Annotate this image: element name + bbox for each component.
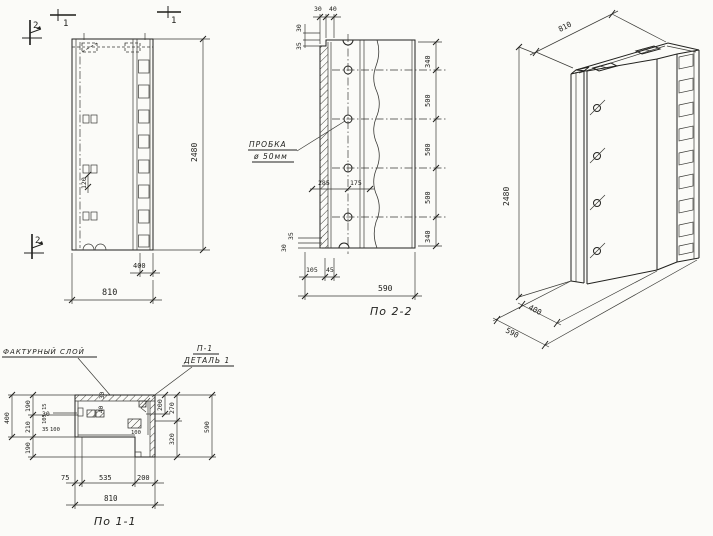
svg-text:30: 30 — [295, 24, 303, 32]
svg-text:2480: 2480 — [502, 187, 511, 206]
section-mark-2a: 2 — [22, 20, 42, 45]
drawing-sheet: 120 2480 400 810 1 1 2 — [0, 0, 713, 536]
elevation-width-dim: 810 — [64, 253, 162, 304]
elevation-height-dim: 2480 — [153, 36, 210, 253]
detail-ref-label: П-1 — [197, 344, 213, 353]
iso-montage-slots — [593, 46, 660, 71]
svg-text:340: 340 — [424, 55, 432, 68]
elevation-dim-width: 810 — [102, 288, 117, 298]
s11-embedded-parts — [78, 398, 150, 428]
s11-left-dims: 190 210 190 400 — [3, 392, 135, 460]
s11-right-dims: 200 270 320 590 — [146, 392, 216, 460]
svg-text:35: 35 — [295, 42, 303, 50]
iso-bottom-dims: 400 590 — [493, 260, 697, 349]
facing-layer-leader — [78, 358, 110, 395]
iso-height-dim: 2480 — [502, 44, 571, 300]
svg-text:175: 175 — [350, 179, 362, 187]
s11-right-strip — [150, 401, 155, 457]
svg-text:30: 30 — [99, 391, 106, 399]
s22-topleft-dims: 30 35 — [295, 24, 320, 50]
elevation-panel-outline — [72, 39, 153, 250]
section-2-2-view: 30 40 30 35 ПРОБКА ø 50мм 285 175 340 50… — [248, 5, 448, 318]
section-mark-1b: 1 — [157, 6, 181, 26]
s22-bottom-dims: 105 45 590 — [298, 252, 422, 300]
svg-text:30: 30 — [314, 5, 322, 13]
iso-right-face — [657, 54, 677, 270]
elevation-dim-height: 2480 — [190, 143, 199, 162]
section-mark-2b: 2 — [24, 234, 44, 259]
elevation-brackets — [83, 115, 97, 220]
iso-width-dim: 810 — [530, 10, 666, 68]
elevation-bottom-notches — [83, 244, 106, 250]
svg-text:190: 190 — [24, 442, 32, 454]
svg-text:590: 590 — [203, 421, 211, 433]
svg-text:45: 45 — [326, 266, 334, 274]
svg-text:590: 590 — [378, 284, 393, 293]
panel-drawing-svg: 120 2480 400 810 1 1 2 — [0, 0, 713, 536]
svg-text:40: 40 — [329, 5, 337, 13]
elevation-montage-slots — [82, 33, 145, 52]
svg-text:100: 100 — [50, 427, 60, 433]
iso-hole-marks — [590, 100, 605, 258]
svg-text:270: 270 — [168, 402, 176, 414]
svg-text:320: 320 — [168, 433, 176, 445]
svg-text:590: 590 — [504, 326, 521, 340]
elevation-joint-channel — [133, 39, 150, 250]
svg-text:400: 400 — [3, 412, 11, 424]
iso-left-flange — [571, 67, 589, 283]
svg-text:75: 75 — [61, 474, 69, 482]
s11-title: По 1-1 — [94, 515, 136, 528]
svg-text:15: 15 — [42, 403, 48, 410]
svg-text:190: 190 — [24, 400, 32, 412]
svg-text:35: 35 — [287, 232, 295, 240]
svg-text:1: 1 — [171, 16, 176, 26]
facing-layer-label: ФАКТУРНЫЙ СЛОЙ — [3, 347, 85, 356]
s22-top-dims: 30 40 — [313, 5, 341, 44]
iso-front-face — [587, 59, 657, 284]
s11-callouts: ФАКТУРНЫЙ СЛОЙ П-1 ДЕТАЛЬ 1 — [2, 344, 234, 397]
iso-ribbed-edge — [677, 50, 699, 262]
svg-text:810: 810 — [104, 494, 118, 503]
elevation-dim-bracket: 120 — [80, 177, 88, 189]
section-mark-1a: 1 — [50, 9, 76, 29]
s22-botleft-dims: 35 30 — [280, 232, 322, 252]
svg-text:200: 200 — [156, 399, 164, 411]
svg-text:285: 285 — [318, 179, 330, 187]
plug-label-line2: ø 50мм — [253, 152, 288, 161]
s11-bottom-dims: 75 535 200 810 — [61, 437, 164, 509]
section-1-1-view: ФАКТУРНЫЙ СЛОЙ П-1 ДЕТАЛЬ 1 30 40 30 15 … — [2, 344, 234, 528]
svg-text:200: 200 — [137, 474, 150, 482]
s11-cavity — [78, 401, 148, 457]
s22-plug-label: ПРОБКА ø 50мм — [248, 121, 345, 162]
svg-text:535: 535 — [99, 474, 112, 482]
svg-text:2: 2 — [35, 236, 40, 246]
svg-text:105: 105 — [306, 266, 318, 274]
s11-facing-strip — [75, 395, 155, 401]
s22-title: По 2-2 — [370, 305, 412, 318]
elevation-view: 120 2480 400 810 1 1 2 — [22, 6, 210, 304]
svg-text:500: 500 — [424, 94, 432, 107]
elevation-edge-dim: 400 — [130, 253, 160, 277]
svg-text:810: 810 — [557, 19, 574, 33]
svg-text:40: 40 — [98, 405, 105, 413]
svg-text:1: 1 — [63, 19, 68, 29]
svg-text:500: 500 — [424, 191, 432, 204]
s22-right-dims: 340 500 500 500 340 — [418, 39, 442, 249]
detail-name-label: ДЕТАЛЬ 1 — [183, 356, 230, 365]
svg-text:340: 340 — [424, 230, 432, 243]
svg-text:210: 210 — [24, 421, 32, 433]
svg-text:105: 105 — [42, 414, 48, 424]
elevation-dim-edge: 400 — [133, 262, 146, 270]
detail-leader — [152, 367, 192, 397]
svg-text:100: 100 — [131, 430, 141, 436]
svg-text:500: 500 — [424, 143, 432, 156]
s22-facing-layer — [320, 46, 328, 248]
svg-text:35: 35 — [42, 427, 49, 433]
svg-text:30: 30 — [280, 244, 288, 252]
plug-label-line1: ПРОБКА — [249, 140, 287, 149]
svg-text:2: 2 — [33, 21, 38, 31]
isometric-view: 810 2480 400 590 — [493, 10, 699, 349]
